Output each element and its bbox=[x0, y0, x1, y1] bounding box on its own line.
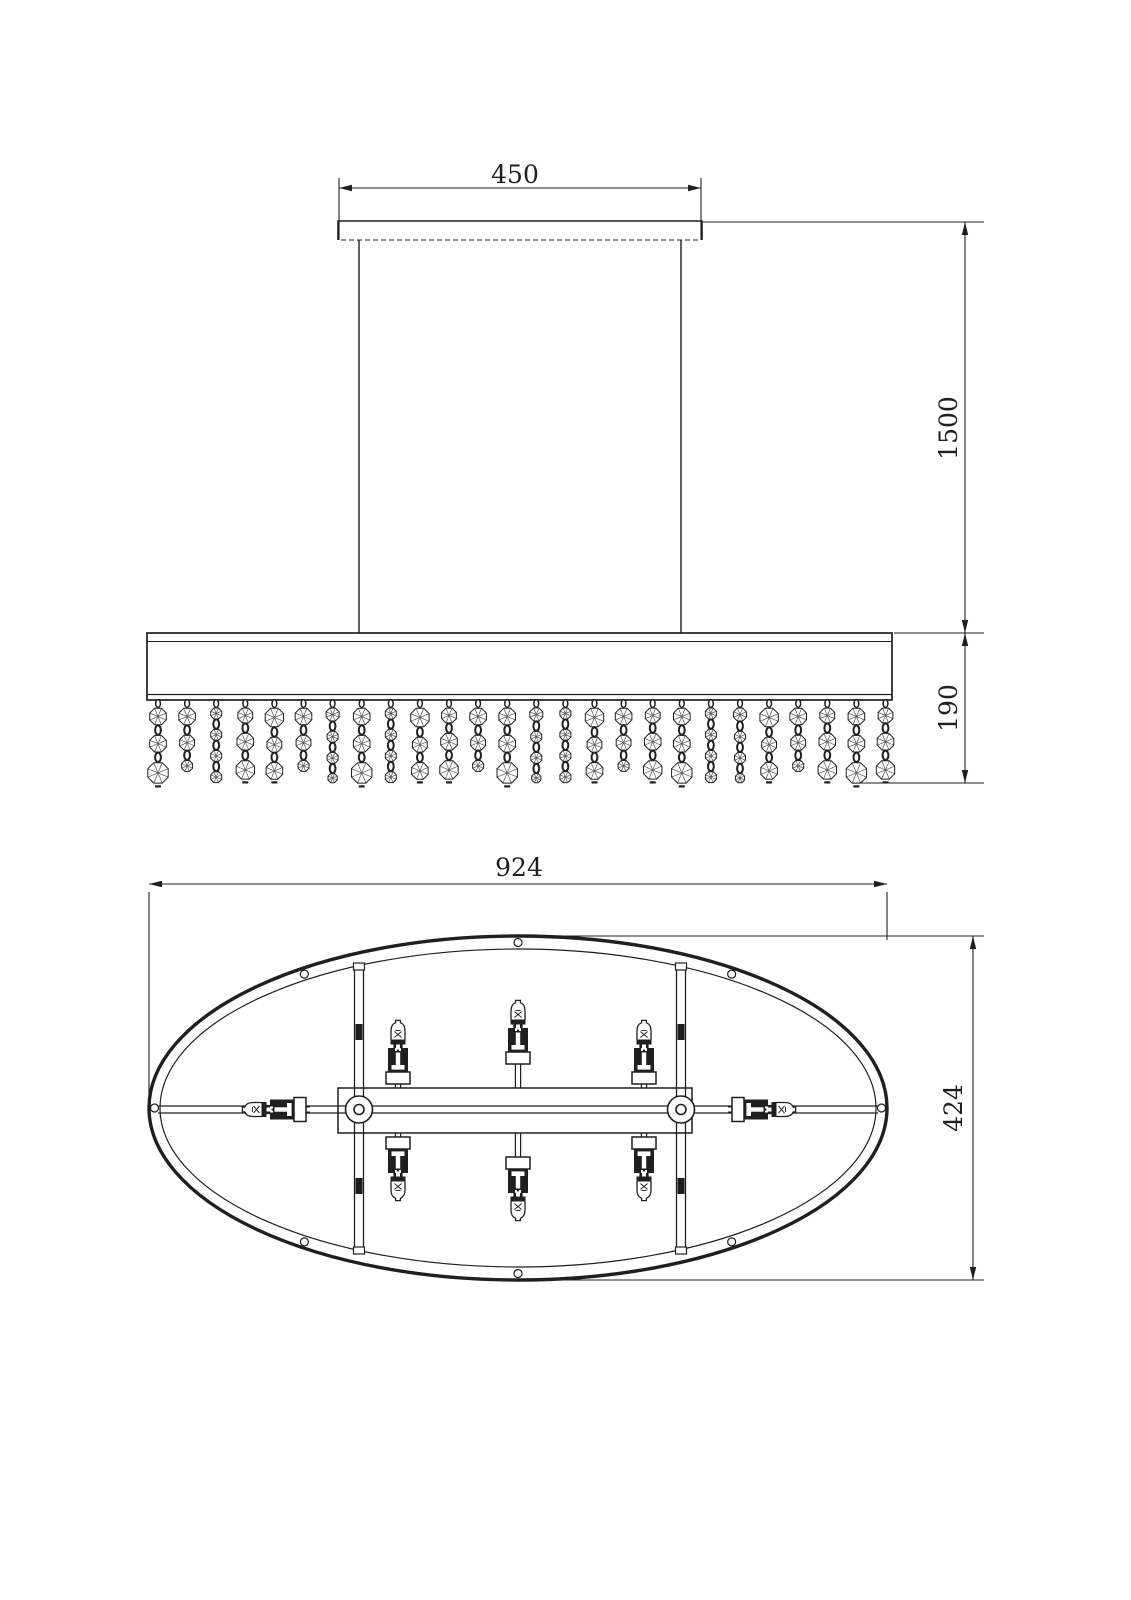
dim-label-body-height: 190 bbox=[934, 684, 963, 732]
dim-label-canopy-width: 450 bbox=[491, 160, 539, 189]
crystal-strand bbox=[734, 700, 747, 783]
lamp-holder-symbol bbox=[506, 1133, 530, 1221]
crystal-strand bbox=[643, 700, 661, 783]
crystal-strand bbox=[440, 700, 458, 783]
mounting-frame bbox=[338, 1088, 692, 1133]
lamp-holder-symbol bbox=[632, 1133, 656, 1201]
crystal-strand bbox=[790, 700, 807, 772]
crystal-strand bbox=[326, 700, 339, 783]
plan-bottom-view bbox=[149, 936, 887, 1280]
suspension-hubs bbox=[346, 1096, 695, 1123]
dimension-fixture-length bbox=[149, 881, 887, 1098]
lamp-holder-symbol bbox=[386, 1133, 410, 1201]
crystal-strand bbox=[265, 700, 283, 783]
crystal-strand bbox=[530, 700, 543, 783]
lamp-holder-symbol bbox=[632, 1020, 656, 1088]
lamp-holder-symbol bbox=[506, 1000, 530, 1088]
crystal-strand bbox=[615, 700, 632, 772]
crystal-strands bbox=[148, 700, 895, 787]
lamp-holders bbox=[242, 1000, 795, 1220]
shade-body bbox=[147, 633, 892, 700]
crystal-strand bbox=[846, 700, 866, 787]
technical-drawing: 450 1500 190 924 424 bbox=[0, 0, 1131, 1600]
crystal-strand bbox=[385, 700, 396, 783]
suspension-rods bbox=[359, 240, 681, 633]
crystal-strand bbox=[470, 700, 487, 772]
crystal-strand bbox=[411, 700, 429, 783]
crystal-strand bbox=[236, 700, 254, 783]
crystal-strand bbox=[211, 700, 222, 783]
crystal-strand bbox=[672, 700, 692, 787]
crystal-strand bbox=[760, 700, 778, 783]
dim-label-fixture-length: 924 bbox=[495, 853, 543, 882]
lamp-holder-symbol bbox=[242, 1098, 310, 1122]
crystal-strand bbox=[705, 700, 716, 783]
dim-label-suspension-height: 1500 bbox=[934, 396, 963, 460]
crystal-strand bbox=[818, 700, 836, 783]
crystal-strand bbox=[295, 700, 312, 772]
ceiling-canopy bbox=[338, 221, 702, 240]
crystal-strand bbox=[497, 700, 517, 787]
lamp-holder-symbol bbox=[728, 1098, 796, 1122]
crystal-strand bbox=[352, 700, 372, 787]
crystal-strand bbox=[148, 700, 168, 787]
side-elevation-view bbox=[147, 221, 895, 786]
crystal-strand bbox=[876, 700, 894, 783]
crystal-strand bbox=[585, 700, 603, 783]
crystal-strand bbox=[179, 700, 196, 772]
crystal-strand bbox=[560, 700, 571, 783]
lamp-holder-symbol bbox=[386, 1020, 410, 1088]
dim-label-fixture-width: 424 bbox=[939, 1084, 968, 1132]
drawing-sheet: 450 1500 190 924 424 bbox=[0, 0, 1131, 1600]
